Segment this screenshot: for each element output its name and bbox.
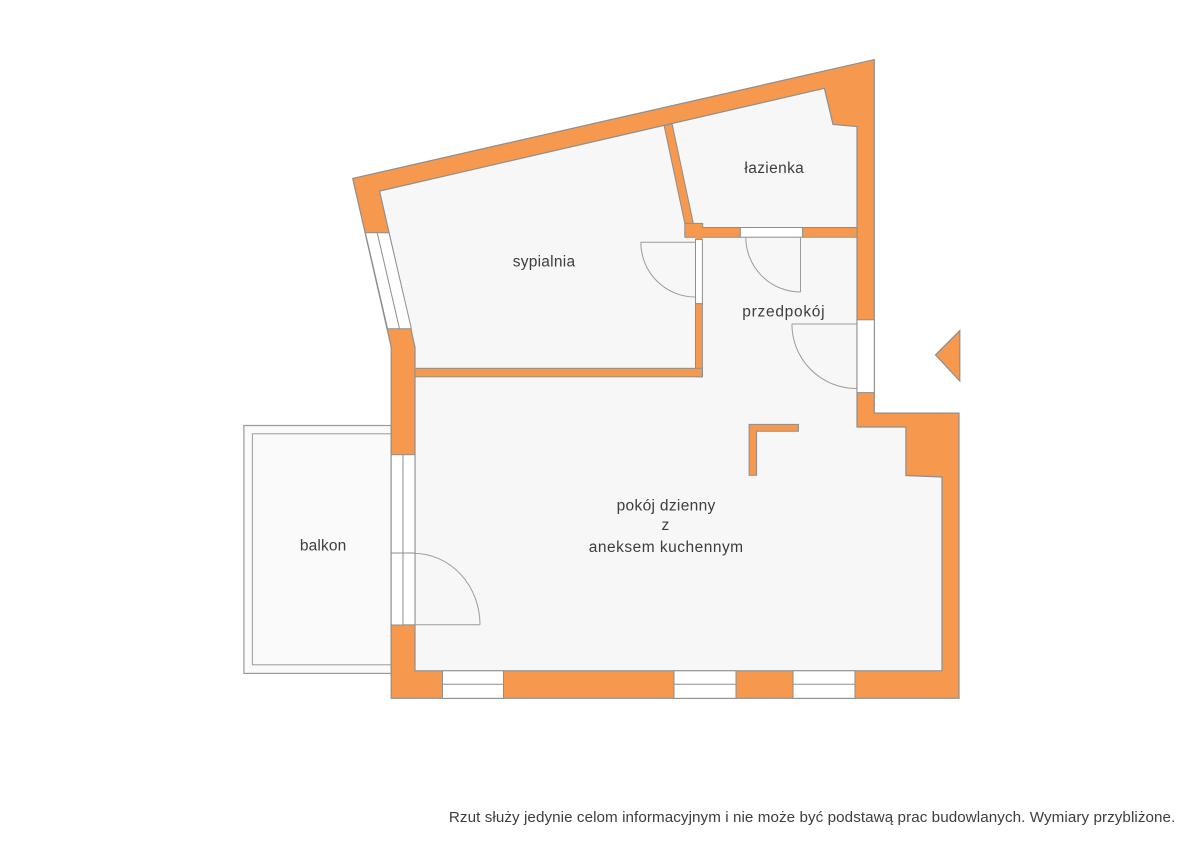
svg-text:łazienka: łazienka: [744, 160, 804, 177]
svg-text:sypialnia: sypialnia: [513, 254, 576, 271]
svg-text:pokój dzienny: pokój dzienny: [617, 498, 716, 515]
svg-text:przedpokój: przedpokój: [742, 303, 824, 320]
svg-text:balkon: balkon: [300, 538, 346, 555]
svg-text:Rzut służy jedynie celom infor: Rzut służy jedynie celom informacyjnym i…: [449, 809, 1175, 826]
svg-text:aneksem kuchennym: aneksem kuchennym: [589, 539, 743, 556]
svg-text:z: z: [662, 517, 670, 534]
